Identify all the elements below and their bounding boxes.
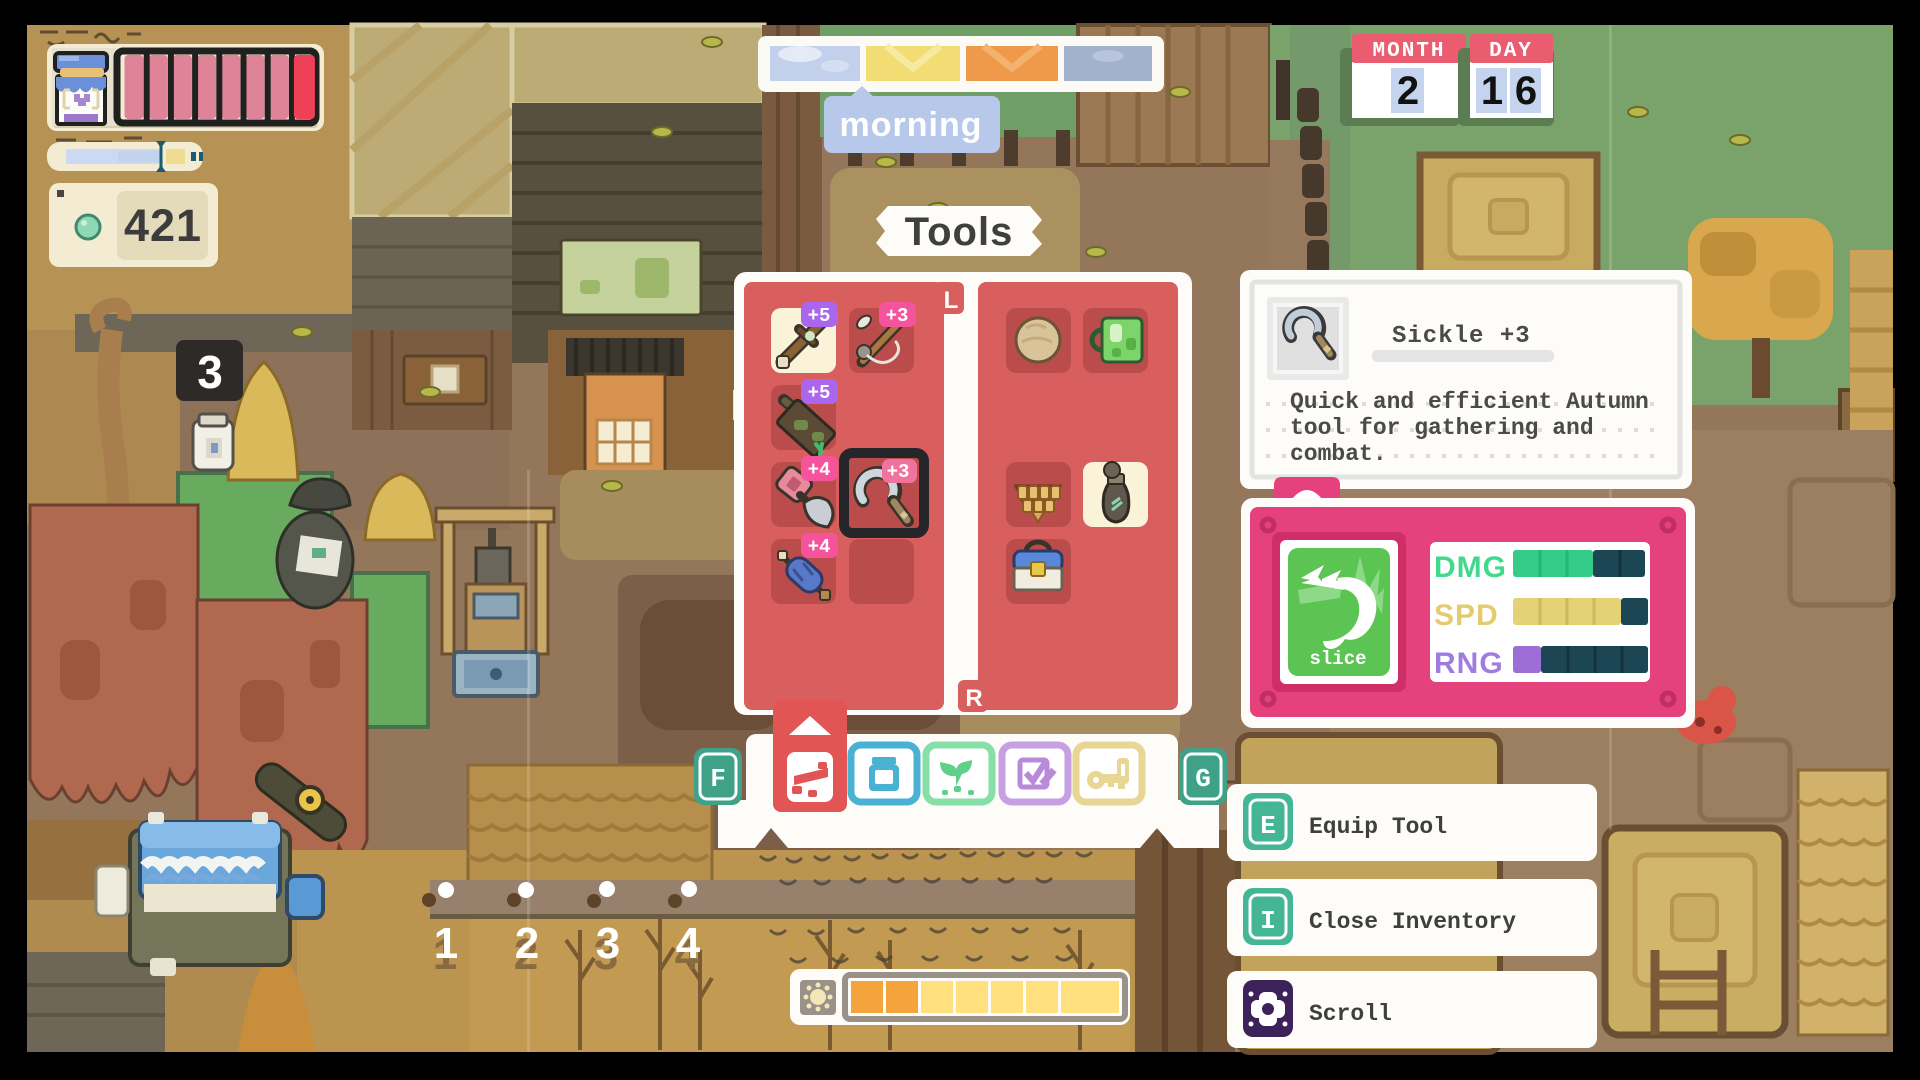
svg-text:E: E <box>1260 811 1276 841</box>
svg-text:combat.: combat. <box>1290 441 1387 467</box>
svg-text:+4: +4 <box>808 536 831 558</box>
svg-text:Quick and efficient Autumn: Quick and efficient Autumn <box>1290 389 1649 415</box>
svg-text:2: 2 <box>515 919 539 968</box>
svg-text:3: 3 <box>197 346 223 398</box>
svg-text:RNG: RNG <box>1434 647 1504 680</box>
svg-text:slice: slice <box>1309 648 1366 670</box>
svg-text:+3: +3 <box>887 461 910 483</box>
svg-text:1: 1 <box>434 919 458 968</box>
svg-text:Scroll: Scroll <box>1309 1001 1392 1027</box>
svg-text:R: R <box>965 685 982 712</box>
svg-text:DMG: DMG <box>1434 551 1507 584</box>
svg-text:SPD: SPD <box>1434 599 1499 632</box>
svg-text:DAY: DAY <box>1489 40 1533 63</box>
svg-text:+5: +5 <box>808 305 831 327</box>
svg-text:+5: +5 <box>808 382 831 404</box>
svg-text:Tools: Tools <box>905 210 1014 254</box>
svg-text:2: 2 <box>1397 69 1419 113</box>
svg-text:1: 1 <box>1481 69 1503 113</box>
svg-text:Equip Tool: Equip Tool <box>1309 814 1447 840</box>
svg-text:4: 4 <box>676 919 701 968</box>
svg-text:I: I <box>1260 906 1276 936</box>
svg-text:MONTH: MONTH <box>1372 40 1445 63</box>
svg-text:Sickle +3: Sickle +3 <box>1392 323 1531 350</box>
svg-text:morning: morning <box>840 106 983 144</box>
svg-text:Close Inventory: Close Inventory <box>1309 909 1516 935</box>
svg-text:+4: +4 <box>808 459 831 481</box>
svg-text:3: 3 <box>596 919 620 968</box>
svg-text:tool for gathering and: tool for gathering and <box>1290 415 1594 441</box>
svg-text:6: 6 <box>1515 69 1537 113</box>
svg-text:421: 421 <box>124 200 202 251</box>
svg-text:F: F <box>710 764 726 794</box>
svg-text:+3: +3 <box>886 305 909 327</box>
svg-text:G: G <box>1195 764 1211 794</box>
svg-text:L: L <box>944 287 959 314</box>
